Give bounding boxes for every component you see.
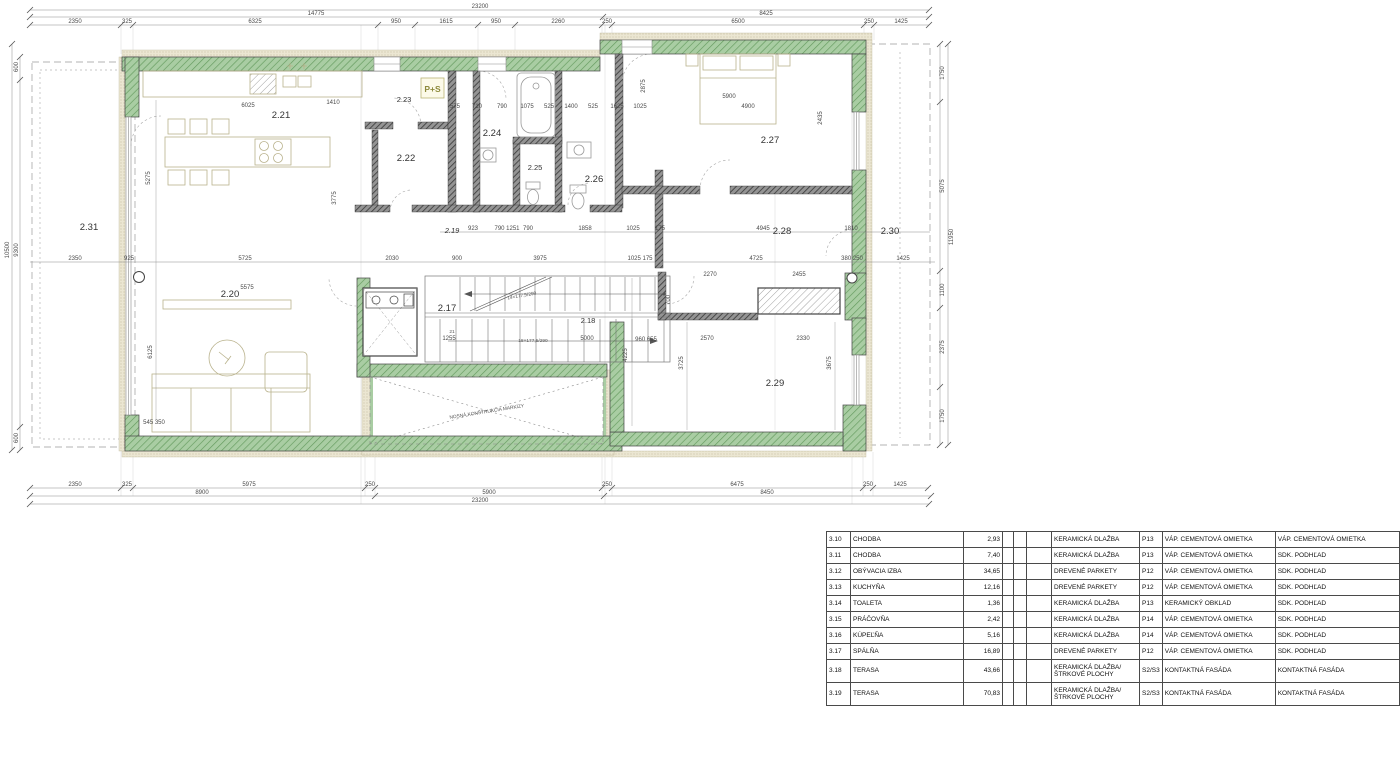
svg-text:2350: 2350 — [68, 256, 82, 262]
svg-text:2030: 2030 — [385, 256, 399, 262]
svg-text:710: 710 — [472, 104, 483, 110]
ps-badge: P+S — [421, 78, 444, 98]
svg-text:1425: 1425 — [894, 19, 908, 25]
svg-text:4900: 4900 — [741, 104, 755, 110]
svg-text:600: 600 — [14, 432, 20, 443]
room-label-2-24: 2.24 — [483, 128, 502, 139]
svg-text:5575: 5575 — [240, 285, 254, 291]
svg-text:1025: 1025 — [633, 104, 647, 110]
room-label-2-22: 2.22 — [397, 153, 416, 164]
room-wall: VÁP. CEMENTOVÁ OMIETKA — [1162, 532, 1275, 548]
svg-text:1425: 1425 — [893, 482, 907, 488]
room-floor: KERAMICKÁ DLAŽBA — [1052, 532, 1140, 548]
svg-text:950: 950 — [391, 19, 402, 25]
svg-text:380 250: 380 250 — [841, 256, 863, 262]
svg-text:175: 175 — [655, 226, 666, 232]
svg-text:1750: 1750 — [940, 409, 946, 423]
svg-text:325: 325 — [122, 482, 133, 488]
room-area: 2,93 — [964, 532, 1003, 548]
svg-text:11950: 11950 — [949, 228, 955, 245]
svg-text:1255: 1255 — [442, 336, 456, 342]
room-ceiling: VÁP. CEMENTOVÁ OMIETKA — [1275, 532, 1399, 548]
svg-text:23200: 23200 — [472, 4, 489, 10]
svg-text:5275: 5275 — [146, 171, 152, 185]
legend-row: 3.17SPÁLŇA16,89DREVENÉ PARKETYP12VÁP. CE… — [827, 644, 1400, 660]
room-label-2-20: 2.20 — [221, 289, 240, 300]
svg-text:1400: 1400 — [564, 104, 578, 110]
svg-text:1425: 1425 — [896, 256, 910, 262]
svg-text:P+S: P+S — [424, 84, 441, 94]
svg-text:1025: 1025 — [626, 226, 640, 232]
svg-text:14775: 14775 — [308, 11, 325, 17]
svg-text:2350: 2350 — [68, 482, 82, 488]
svg-text:1075: 1075 — [520, 104, 534, 110]
svg-text:5900: 5900 — [482, 490, 496, 496]
legend-row: 3.13KUCHYŇA12,16DREVENÉ PARKETYP12VÁP. C… — [827, 580, 1400, 596]
svg-text:545 350: 545 350 — [143, 420, 165, 426]
svg-text:575: 575 — [450, 104, 461, 110]
svg-text:250: 250 — [602, 19, 613, 25]
room-label-2-21: 2.21 — [272, 110, 291, 121]
notes: 14×177,5/290 18×177,5/290 21 NOSNÁ KONŠT… — [449, 290, 548, 420]
room-labels: 2.17 2.18 2.19 2.20 2.21 2.22 2.23 2.24 … — [80, 95, 900, 389]
svg-text:900: 900 — [452, 256, 463, 262]
svg-text:18×177,5/290: 18×177,5/290 — [518, 338, 548, 344]
room-name: CHODBA — [851, 532, 964, 548]
legend-row: 3.15PRÁČOVŇA2,42KERAMICKÁ DLAŽBAP14VÁP. … — [827, 612, 1400, 628]
svg-text:3975: 3975 — [533, 256, 547, 262]
svg-text:5725: 5725 — [238, 256, 252, 262]
svg-text:925: 925 — [124, 256, 135, 262]
room-label-2-30: 2.30 — [881, 226, 900, 237]
svg-text:8450: 8450 — [760, 490, 774, 496]
room-label-2-27: 2.27 — [761, 135, 780, 146]
svg-text:1100: 1100 — [940, 283, 946, 297]
exterior-walls — [122, 40, 866, 451]
room-code: P13 — [1140, 532, 1163, 548]
svg-text:2435: 2435 — [818, 111, 824, 125]
svg-text:5075: 5075 — [940, 179, 946, 193]
room-legend-table: 3.10CHODBA2,93KERAMICKÁ DLAŽBAP13VÁP. CE… — [826, 531, 1400, 706]
svg-text:250: 250 — [365, 482, 376, 488]
svg-text:6500: 6500 — [731, 19, 745, 25]
svg-text:525: 525 — [544, 104, 555, 110]
svg-text:2270: 2270 — [703, 272, 717, 278]
svg-text:1750: 1750 — [940, 66, 946, 80]
svg-text:2375: 2375 — [940, 340, 946, 354]
svg-text:2350: 2350 — [68, 19, 82, 25]
room-label-2-29: 2.29 — [766, 378, 785, 389]
svg-text:4945: 4945 — [756, 226, 770, 232]
svg-text:2875: 2875 — [641, 79, 647, 93]
legend-row: 3.12OBÝVACIA IZBA34,65DREVENÉ PARKETYP12… — [827, 564, 1400, 580]
svg-text:790 1251: 790 1251 — [494, 226, 520, 232]
legend-row: 3.14TOALETA1,36KERAMICKÁ DLAŽBAP13KERAMI… — [827, 596, 1400, 612]
svg-text:1410: 1410 — [326, 100, 340, 106]
svg-text:525: 525 — [588, 104, 599, 110]
svg-text:23200: 23200 — [472, 498, 489, 504]
room-label-2-23: 2.23 — [397, 95, 412, 104]
svg-text:6475: 6475 — [730, 482, 744, 488]
legend-row: 3.18TERASA43,66KERAMICKÁ DLAŽBA/ŠTRKOVÉ … — [827, 660, 1400, 683]
insulation-bands — [119, 33, 872, 457]
terrace-2-30 — [868, 44, 930, 445]
svg-text:2570: 2570 — [700, 336, 714, 342]
svg-text:10500: 10500 — [5, 241, 11, 258]
svg-text:250: 250 — [863, 482, 874, 488]
svg-text:1810: 1810 — [844, 226, 858, 232]
svg-text:2260: 2260 — [551, 19, 565, 25]
svg-text:3675: 3675 — [827, 356, 833, 370]
room-id: 3.10 — [827, 532, 851, 548]
windows — [126, 40, 859, 415]
svg-text:790: 790 — [523, 226, 534, 232]
svg-text:923: 923 — [468, 226, 479, 232]
svg-text:1625: 1625 — [610, 104, 624, 110]
room-label-2-31: 2.31 — [80, 222, 99, 233]
svg-text:790: 790 — [497, 104, 508, 110]
room-label-2-26: 2.26 — [585, 174, 604, 185]
svg-text:9300: 9300 — [14, 243, 20, 257]
legend-row: 3.16KÚPEĽŇA5,16KERAMICKÁ DLAŽBAP14VÁP. C… — [827, 628, 1400, 644]
legend-row: 3.11CHODBA7,40KERAMICKÁ DLAŽBAP13VÁP. CE… — [827, 548, 1400, 564]
room-label-2-18: 2.18 — [581, 316, 596, 325]
svg-text:6325: 6325 — [248, 19, 262, 25]
room-label-2-17: 2.17 — [438, 303, 457, 314]
svg-text:250: 250 — [602, 482, 613, 488]
stair-step-number: 21 — [449, 329, 455, 335]
room-label-2-28: 2.28 — [773, 226, 792, 237]
svg-text:950: 950 — [491, 19, 502, 25]
svg-text:1858: 1858 — [578, 226, 592, 232]
svg-text:250: 250 — [864, 19, 875, 25]
svg-text:2455: 2455 — [792, 272, 806, 278]
svg-text:6125: 6125 — [148, 345, 154, 359]
svg-text:1615: 1615 — [439, 19, 453, 25]
svg-text:2330: 2330 — [796, 336, 810, 342]
svg-text:3725: 3725 — [679, 356, 685, 370]
door-swings — [131, 54, 852, 306]
staircase — [425, 276, 670, 362]
svg-text:8425: 8425 — [759, 11, 773, 17]
svg-text:5975: 5975 — [242, 482, 256, 488]
architectural-floorplan-page: { "plan": { "rooms": { "r217": "2.17", "… — [0, 0, 1400, 771]
svg-text:5000: 5000 — [580, 336, 594, 342]
room-label-2-25: 2.25 — [528, 163, 543, 172]
svg-text:325: 325 — [122, 19, 133, 25]
structural-columns — [134, 272, 858, 284]
svg-text:6025: 6025 — [241, 103, 255, 109]
svg-text:4225: 4225 — [623, 348, 629, 362]
legend-row: 3.19TERASA70,83KERAMICKÁ DLAŽBA/ŠTRKOVÉ … — [827, 683, 1400, 706]
room-label-2-19: 2.19 — [444, 226, 460, 235]
svg-text:1025 175: 1025 175 — [627, 256, 653, 262]
legend-row: 3.10CHODBA2,93KERAMICKÁ DLAŽBAP13VÁP. CE… — [827, 532, 1400, 548]
svg-text:3775: 3775 — [332, 191, 338, 205]
svg-text:4725: 4725 — [749, 256, 763, 262]
svg-text:960 655: 960 655 — [635, 337, 657, 343]
svg-text:14×177,5/290: 14×177,5/290 — [507, 290, 537, 301]
svg-text:8900: 8900 — [195, 490, 209, 496]
svg-text:600: 600 — [14, 61, 20, 72]
svg-text:700: 700 — [666, 294, 672, 305]
awning-note: NOSNÁ KONŠTRUKCIA MARKÍZY — [449, 402, 525, 421]
svg-text:5900: 5900 — [722, 94, 736, 100]
elevator — [363, 288, 417, 356]
